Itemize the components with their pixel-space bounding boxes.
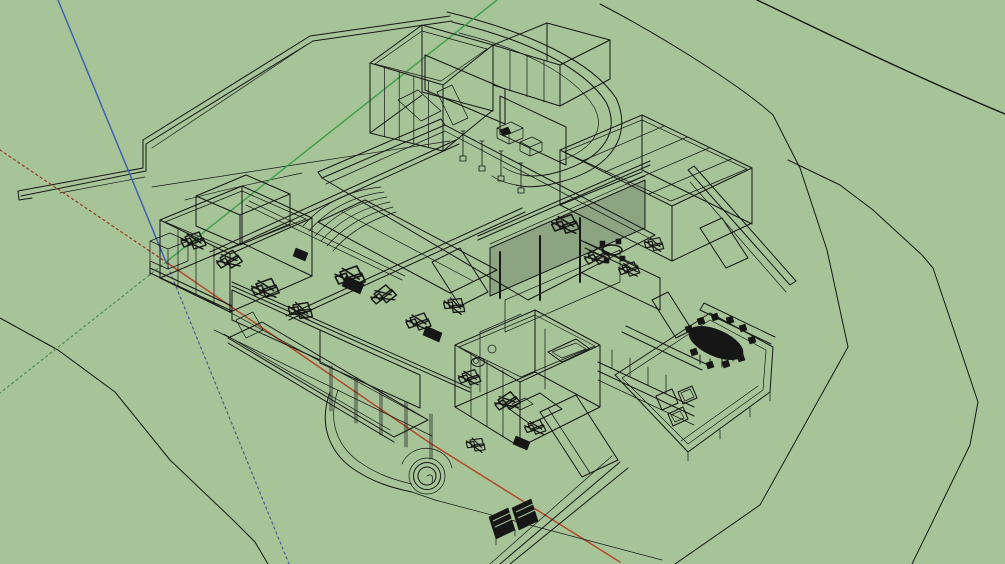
driveway-loop: [447, 12, 622, 187]
contour-line: [0, 318, 268, 564]
model-viewport[interactable]: [0, 0, 1005, 564]
sink: [488, 345, 496, 353]
glazed-front-facade: [200, 282, 470, 459]
patio-stair: [652, 292, 692, 338]
red-axis-line: [166, 262, 620, 562]
courtyard-louver-wall: [478, 161, 650, 332]
southeast-stair: [490, 395, 628, 564]
garden-path: [325, 390, 662, 560]
small-stair: [437, 85, 468, 125]
contour-line: [788, 160, 978, 564]
garage-roof: [493, 23, 610, 65]
green-axis-line: [166, 0, 497, 262]
upper-pavilion: [370, 23, 610, 193]
contour-line: [757, 0, 1005, 114]
green-axis-negative: [0, 262, 166, 393]
road-edge: [152, 141, 450, 187]
red-axis-negative: [0, 150, 166, 262]
round-planter: [402, 448, 452, 494]
right-walkway: [598, 326, 706, 425]
window-band: [232, 290, 320, 360]
stair: [700, 218, 748, 268]
model-canvas[interactable]: [0, 0, 1005, 564]
blue-axis-line: [58, 0, 166, 262]
patio-deck: [615, 292, 775, 461]
amphitheater-steps: [303, 187, 396, 251]
site-roads-walls: [18, 12, 622, 200]
left-bedroom-wing: [150, 175, 320, 360]
contour-line: [600, 4, 848, 564]
mid-stair: [432, 248, 488, 306]
building-model[interactable]: [150, 23, 796, 564]
long-wall: [688, 166, 796, 285]
small-stair: [398, 90, 441, 121]
